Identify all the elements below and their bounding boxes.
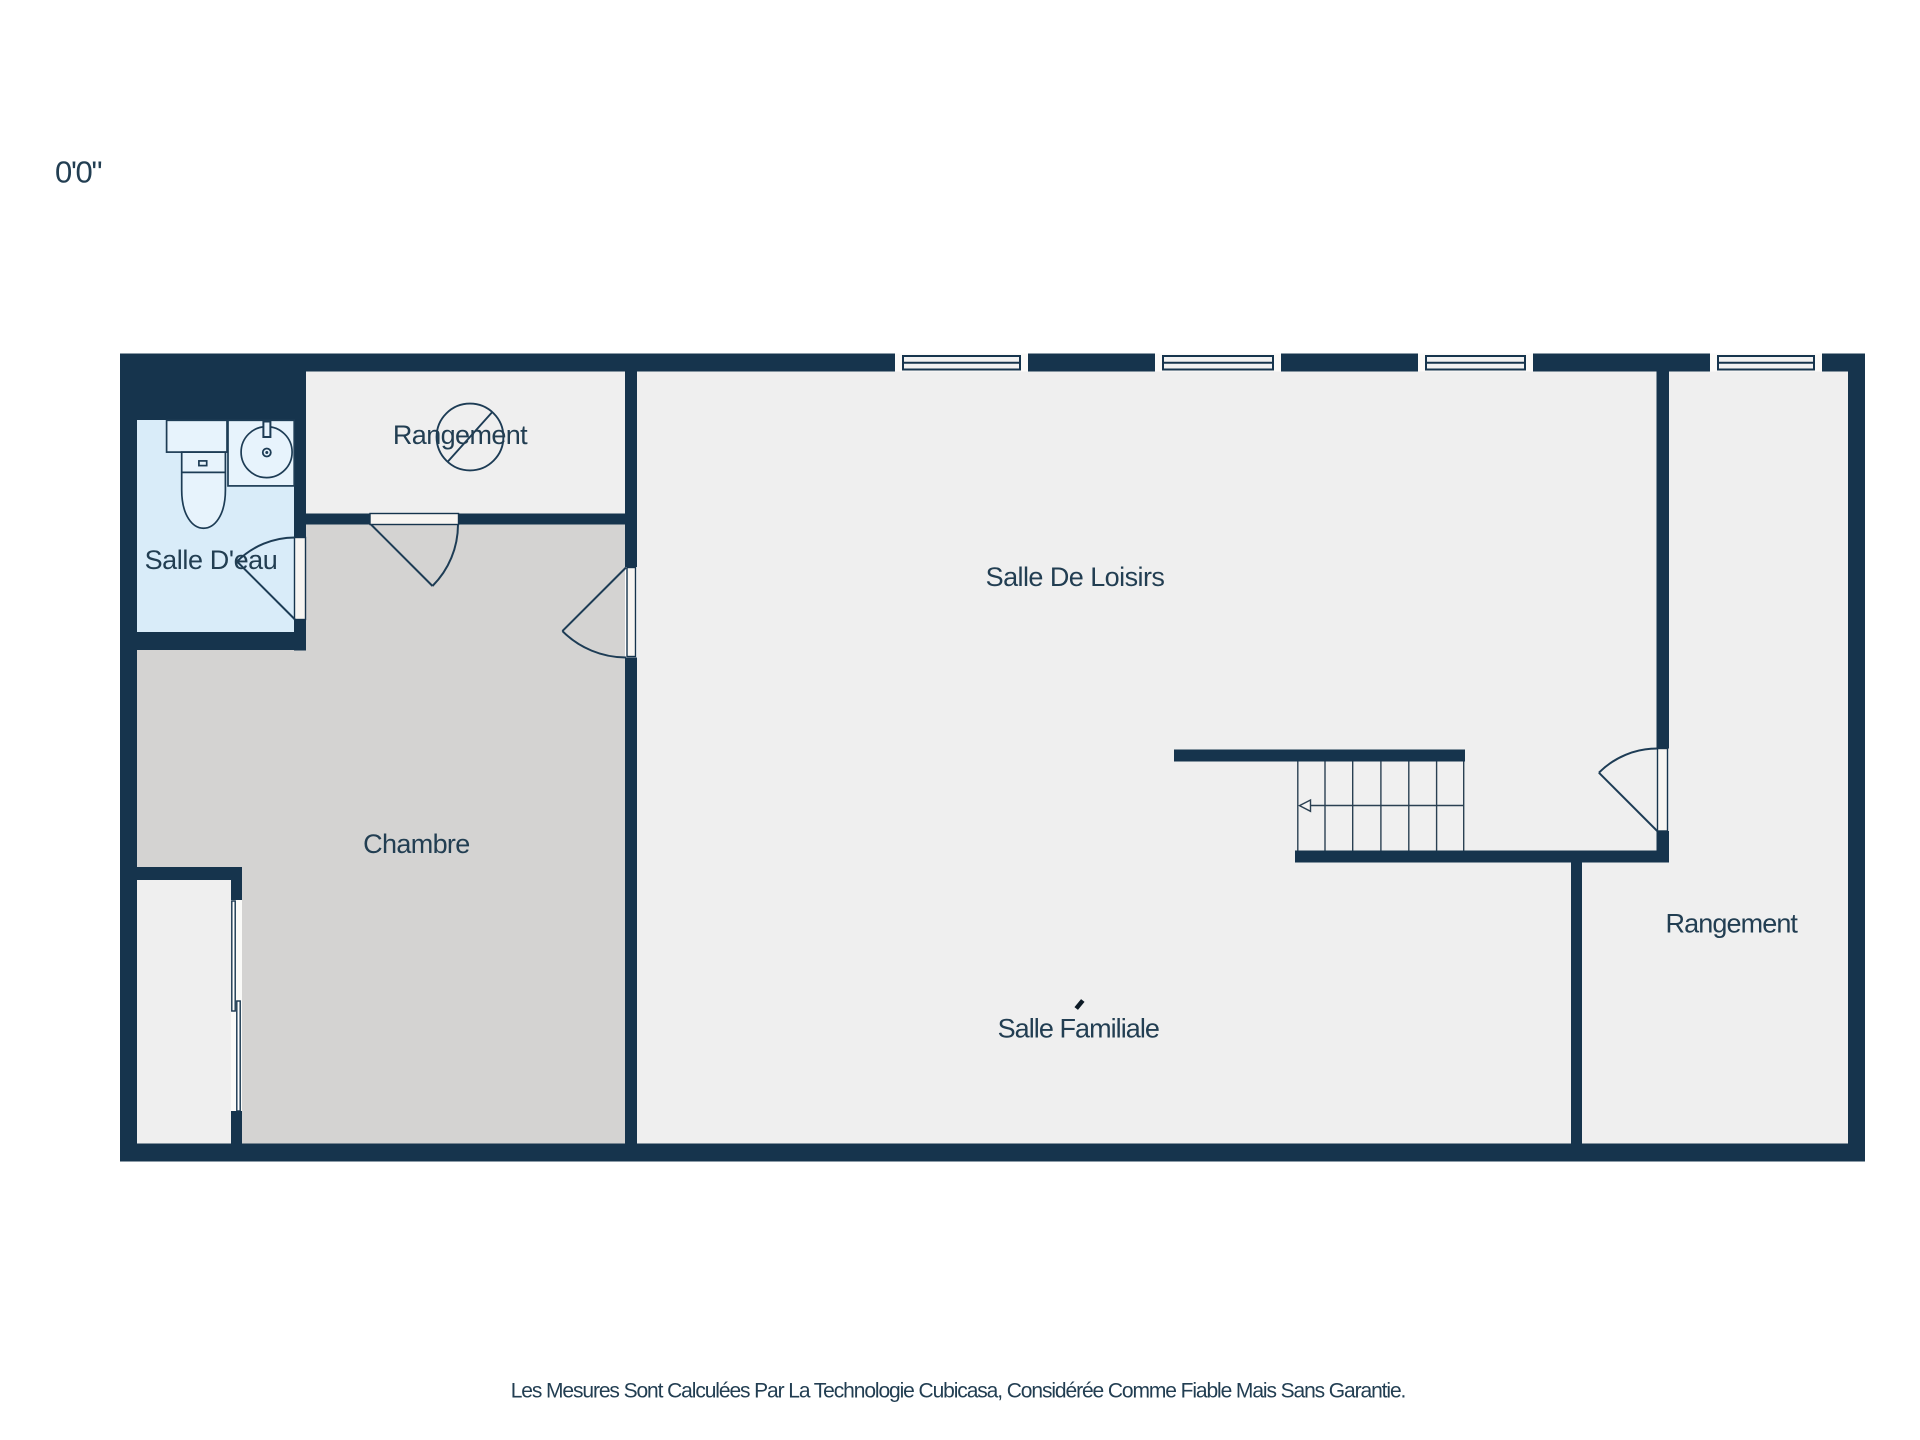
svg-text:Chambre: Chambre <box>363 829 470 859</box>
svg-text:Les Mesures Sont Calculées Par: Les Mesures Sont Calculées Par La Techno… <box>511 1380 1406 1403</box>
svg-text:Rangement: Rangement <box>1666 909 1799 939</box>
svg-text:0'0": 0'0" <box>55 155 101 190</box>
svg-text:Rangement: Rangement <box>393 420 528 450</box>
svg-text:Salle Familiale: Salle Familiale <box>998 1014 1159 1044</box>
svg-text:Salle D'eau: Salle D'eau <box>145 545 278 575</box>
svg-text:Salle De Loisirs: Salle De Loisirs <box>986 562 1165 592</box>
